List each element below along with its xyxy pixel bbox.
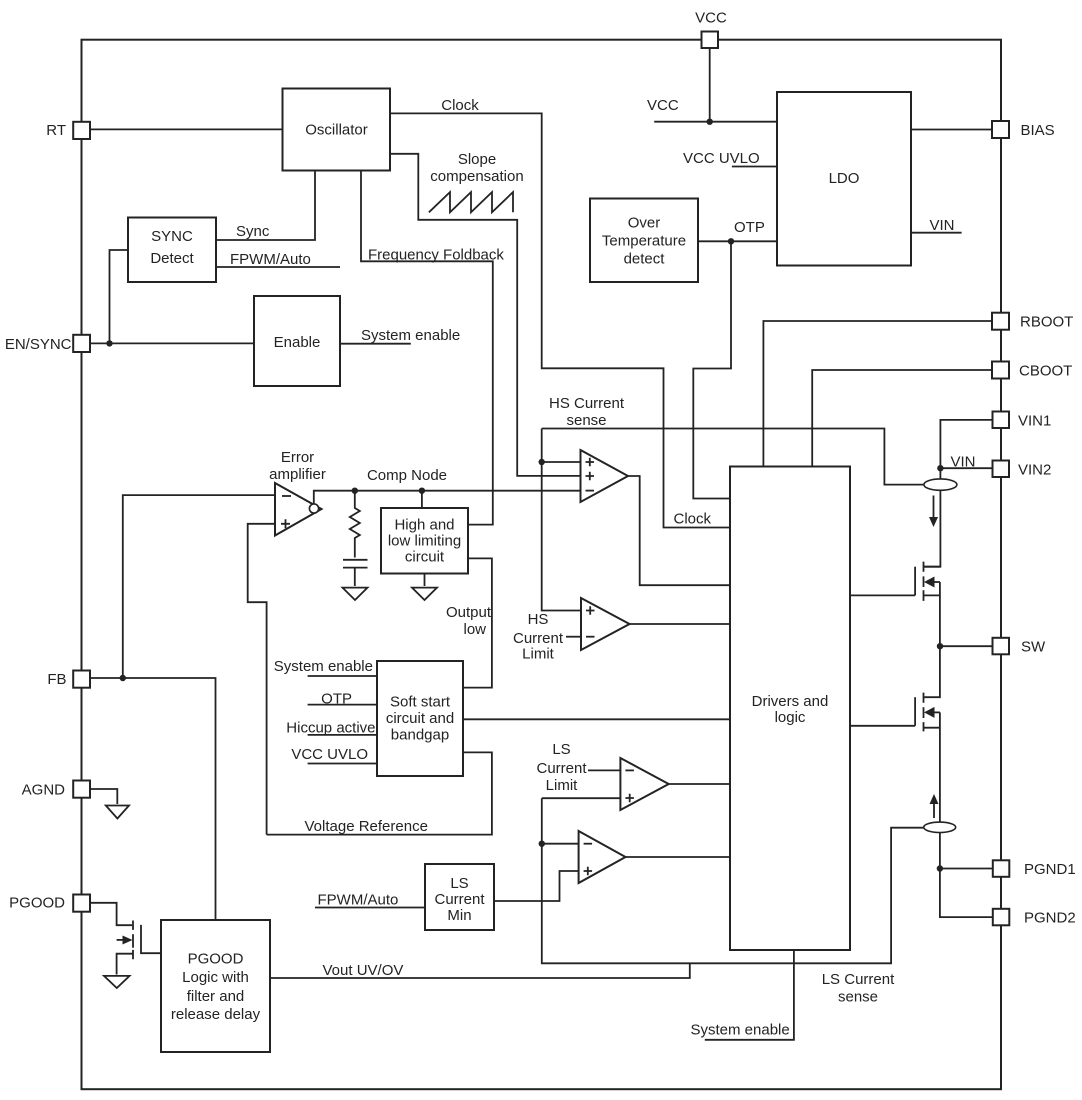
svg-text:VIN: VIN [930,217,955,234]
svg-text:Min: Min [447,907,471,924]
svg-text:Limit: Limit [546,777,579,794]
svg-text:VCC: VCC [695,10,727,27]
svg-text:Comp Node: Comp Node [367,467,447,484]
svg-text:Clock: Clock [441,97,479,114]
svg-text:PGND2: PGND2 [1024,910,1076,927]
svg-text:Hiccup active: Hiccup active [286,720,375,737]
svg-text:sense: sense [838,989,878,1006]
svg-text:VCC UVLO: VCC UVLO [683,150,760,167]
svg-text:Oscillator: Oscillator [305,122,368,139]
svg-text:HS: HS [528,611,549,628]
svg-text:OTP: OTP [321,691,352,708]
svg-text:low: low [463,621,486,638]
svg-text:PGOOD: PGOOD [9,895,65,912]
svg-text:LS Current: LS Current [822,971,895,988]
svg-text:Clock: Clock [674,511,712,528]
svg-text:CBOOT: CBOOT [1019,363,1072,380]
svg-text:Output: Output [446,604,492,621]
svg-text:VCC UVLO: VCC UVLO [291,746,368,763]
svg-text:bandgap: bandgap [391,727,449,744]
svg-text:Current: Current [434,891,485,908]
svg-text:Detect: Detect [150,250,194,267]
svg-text:compensation: compensation [430,168,523,185]
svg-text:VCC: VCC [647,97,679,114]
svg-text:Temperature: Temperature [602,233,686,250]
svg-text:LS: LS [450,875,468,892]
svg-text:low limiting: low limiting [388,533,461,550]
svg-text:HS Current: HS Current [549,395,625,412]
svg-text:Soft start: Soft start [390,694,451,711]
svg-text:Vout UV/OV: Vout UV/OV [323,962,404,979]
svg-text:sense: sense [566,412,606,429]
svg-text:FPWM/Auto: FPWM/Auto [318,892,399,909]
svg-text:VIN2: VIN2 [1018,462,1051,479]
svg-text:Voltage Reference: Voltage Reference [305,818,428,835]
svg-text:AGND: AGND [22,782,66,799]
svg-text:BIAS: BIAS [1021,122,1055,139]
svg-text:RBOOT: RBOOT [1020,314,1073,331]
svg-text:filter and: filter and [187,988,245,1005]
svg-text:PGND1: PGND1 [1024,861,1076,878]
svg-text:Error: Error [281,449,314,466]
svg-text:circuit and: circuit and [386,710,454,727]
svg-text:Slope: Slope [458,151,496,168]
svg-text:EN/SYNC: EN/SYNC [5,336,72,353]
svg-text:Sync: Sync [236,223,270,240]
svg-text:PGOOD: PGOOD [188,951,244,968]
svg-text:VIN: VIN [951,454,976,471]
svg-text:SYNC: SYNC [151,228,193,245]
svg-text:Drivers and: Drivers and [752,693,829,710]
svg-text:High and: High and [394,517,454,534]
svg-text:Limit: Limit [522,646,555,663]
svg-text:SW: SW [1021,639,1046,656]
svg-text:Current: Current [536,760,587,777]
svg-text:Current: Current [513,630,564,647]
svg-text:logic: logic [775,709,806,726]
svg-text:System enable: System enable [361,327,460,344]
svg-text:Enable: Enable [274,334,321,351]
svg-text:release delay: release delay [171,1006,261,1023]
svg-text:FPWM/Auto: FPWM/Auto [230,251,311,268]
svg-text:OTP: OTP [734,219,765,236]
svg-text:System enable: System enable [274,658,373,675]
svg-text:LDO: LDO [829,170,860,187]
svg-text:Logic with: Logic with [182,969,249,986]
svg-text:System enable: System enable [691,1022,790,1039]
svg-text:RT: RT [46,122,66,139]
svg-text:VIN1: VIN1 [1018,413,1051,430]
svg-text:amplifier: amplifier [269,466,326,483]
svg-text:Over: Over [628,215,661,232]
svg-text:LS: LS [552,741,570,758]
svg-text:Frequency Foldback: Frequency Foldback [368,247,504,264]
svg-text:detect: detect [624,251,666,268]
svg-text:circuit: circuit [405,549,445,566]
svg-text:FB: FB [47,671,66,688]
